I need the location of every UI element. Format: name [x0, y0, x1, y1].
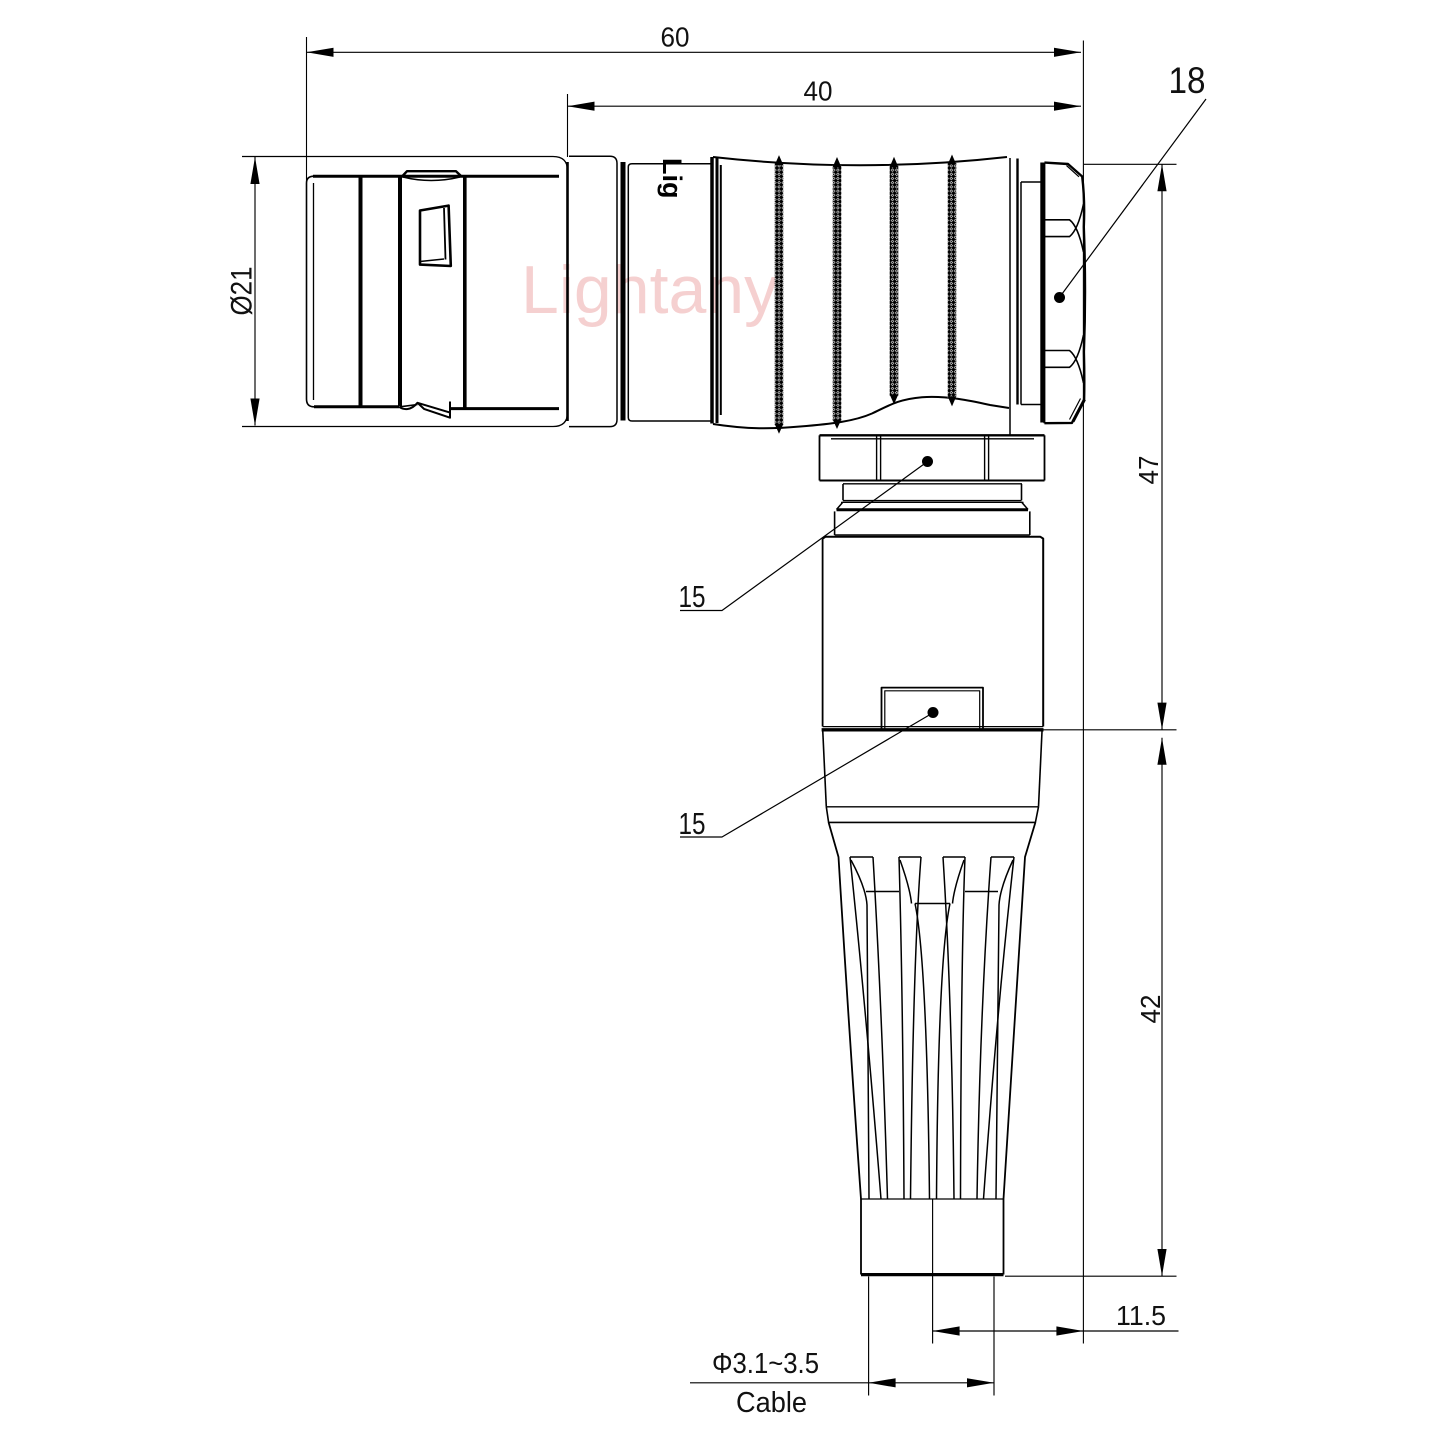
svg-text:Ø21: Ø21 — [226, 267, 259, 316]
svg-text:11.5: 11.5 — [1116, 1300, 1166, 1331]
svg-text:Lightany: Lightany — [521, 252, 778, 328]
svg-text:15: 15 — [679, 806, 706, 841]
svg-text:18: 18 — [1169, 60, 1206, 101]
svg-text:60: 60 — [661, 22, 690, 53]
svg-text:40: 40 — [804, 76, 833, 107]
svg-text:42: 42 — [1135, 995, 1166, 1024]
svg-text:Φ3.1~3.5: Φ3.1~3.5 — [712, 1348, 819, 1380]
svg-text:Cable: Cable — [736, 1387, 807, 1419]
svg-text:Lig: Lig — [657, 158, 687, 199]
svg-text:15: 15 — [679, 579, 706, 614]
svg-text:47: 47 — [1133, 456, 1164, 485]
